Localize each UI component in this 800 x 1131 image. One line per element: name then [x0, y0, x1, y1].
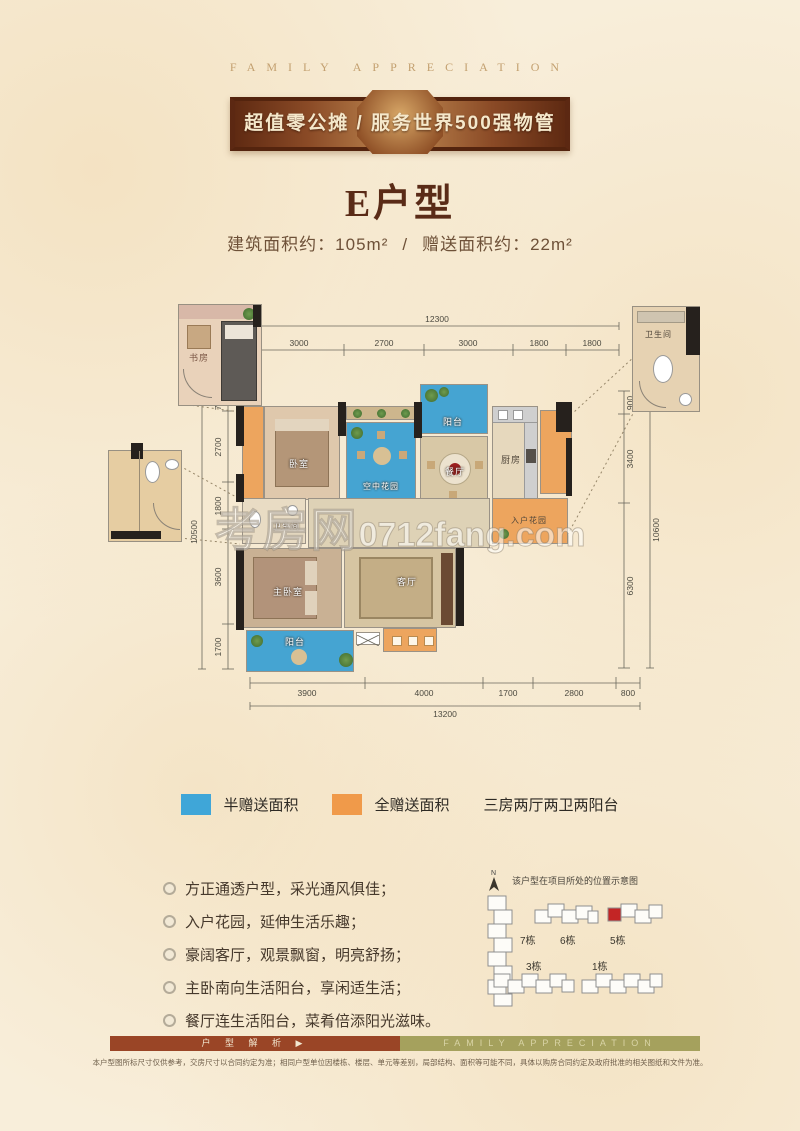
- room-label: 空中花园: [363, 481, 399, 492]
- dim-top-seg: 2700: [364, 338, 404, 348]
- dim-bottom-seg: 4000: [404, 688, 444, 698]
- dim-right-seg: 3400: [625, 441, 635, 477]
- wall: [236, 402, 244, 446]
- dim-left-seg: 1700: [213, 629, 223, 665]
- legend-summary: 三房两厅两卫两阳台: [484, 794, 619, 815]
- site-plan: 该户型在项目所处的位置示意图 N 7栋 6栋 5栋 3栋 1栋: [480, 866, 670, 1016]
- feature-item: 豪阔客厅，观景飘窗，明亮舒扬；: [163, 944, 440, 965]
- room-label: 厨房: [501, 453, 521, 466]
- area-built: 建筑面积约：105m²: [227, 235, 388, 254]
- wall: [566, 438, 572, 496]
- north-arrow-icon: [489, 877, 499, 891]
- dim-left-seg: 3600: [213, 559, 223, 595]
- room-label: 主卧室: [273, 585, 303, 598]
- watermark: 考房网0712fang.com: [90, 494, 710, 560]
- wall: [338, 402, 346, 436]
- bullet-icon: [163, 882, 176, 895]
- building-label-3: 3栋: [526, 960, 542, 973]
- room-sky-garden: 空中花园: [346, 422, 416, 502]
- dim-right-seg: 6300: [625, 568, 635, 604]
- gift-strip-left: [242, 406, 264, 502]
- room-kitchen: 厨房: [492, 406, 538, 506]
- bullet-icon: [163, 948, 176, 961]
- page-title: E户型: [0, 172, 800, 227]
- legend: 半赠送面积 全赠送面积 三房两厅两卫两阳台: [0, 794, 800, 815]
- feature-item: 主卧南向生活阳台，享闲适生活；: [163, 977, 440, 998]
- room-label: 卫生间: [645, 329, 672, 340]
- building-label-1: 1栋: [592, 960, 608, 973]
- dim-top-total: 12300: [417, 314, 457, 324]
- dim-top-seg: 1800: [519, 338, 559, 348]
- wall: [236, 548, 244, 630]
- room-label: 餐厅: [445, 465, 465, 478]
- room-living: 客厅: [344, 548, 456, 628]
- planter-strip: [346, 406, 416, 420]
- feature-item: 方正通透户型，采光通风俱佳；: [163, 878, 440, 899]
- dim-bottom-seg: 2800: [554, 688, 594, 698]
- flyer-page: FAMILY APPRECIATION 超值零公摊 / 服务世界500强物管 E…: [0, 0, 800, 1131]
- legend-label-full: 全赠送面积: [374, 794, 449, 815]
- bullet-icon: [163, 1014, 176, 1027]
- dim-bottom-seg: 3900: [287, 688, 327, 698]
- eyebrow-text: FAMILY APPRECIATION: [0, 60, 800, 75]
- floor-plan: 12300 3000 2700 3000 1800 1800 10500 700…: [90, 298, 710, 740]
- watermark-en: 0712fang.com: [359, 516, 586, 554]
- building-label-6: 6栋: [560, 934, 576, 947]
- room-bedroom: 卧室: [264, 406, 340, 500]
- bullet-icon: [163, 981, 176, 994]
- room-label: 阳台: [285, 635, 305, 648]
- building-label-7: 7栋: [520, 934, 536, 947]
- wall: [556, 402, 572, 432]
- legend-swatch-half: [181, 794, 211, 815]
- room-balcony-top: 阳台: [420, 384, 488, 434]
- inset-bath-top: 卫生间: [632, 306, 700, 412]
- area-subtitle: 建筑面积约：105m²/赠送面积约：22m²: [0, 230, 800, 255]
- feature-item: 入户花园，延伸生活乐趣；: [163, 911, 440, 932]
- footer-bar-left: 户 型 解 析 ▶: [110, 1036, 400, 1051]
- site-plan-caption: 该户型在项目所处的位置示意图: [512, 874, 638, 887]
- room-label: 卧室: [289, 457, 309, 470]
- window-symbol: [356, 632, 380, 645]
- feature-item: 餐厅连生活阳台，菜肴倍添阳光滋味。: [163, 1010, 440, 1031]
- dim-bottom-seg: 800: [608, 688, 648, 698]
- room-label: 客厅: [397, 575, 417, 588]
- area-gift: 赠送面积约：22m²: [422, 235, 573, 254]
- site-plan-map: N 7栋 6栋 5栋 3栋 1栋: [480, 866, 670, 1016]
- watermark-cn: 考房网: [215, 504, 359, 556]
- feature-list: 方正通透户型，采光通风俱佳； 入户花园，延伸生活乐趣； 豪阔客厅，观景飘窗，明亮…: [163, 878, 440, 1043]
- dim-left-seg: 2700: [213, 429, 223, 465]
- room-master-bedroom: 主卧室: [242, 548, 342, 628]
- north-label: N: [491, 870, 496, 877]
- dim-bottom-total: 13200: [425, 709, 465, 719]
- room-label: 阳台: [443, 415, 463, 428]
- wall: [414, 402, 422, 438]
- dim-top-seg: 3000: [279, 338, 319, 348]
- legend-swatch-full: [332, 794, 362, 815]
- dim-top-seg: 1800: [572, 338, 612, 348]
- dim-bottom-seg: 1700: [488, 688, 528, 698]
- room-balcony-bottom: 阳台: [246, 630, 354, 672]
- highlighted-unit: [608, 908, 621, 921]
- footer-bar-right: FAMILY APPRECIATION: [400, 1036, 700, 1051]
- room-label: 书房: [189, 351, 209, 364]
- building-label-5: 5栋: [610, 934, 626, 947]
- bullet-icon: [163, 915, 176, 928]
- ribbon-banner: 超值零公摊 / 服务世界500强物管: [230, 97, 570, 151]
- ribbon-text: 超值零公摊 / 服务世界500强物管: [235, 101, 565, 147]
- dim-top-seg: 3000: [448, 338, 488, 348]
- gift-box-bottom: [383, 628, 437, 652]
- area-separator: /: [402, 235, 408, 254]
- legend-label-half: 半赠送面积: [223, 794, 298, 815]
- inset-study: 书房: [178, 304, 262, 406]
- disclaimer-text: 本户型图所标尺寸仅供参考，交房尺寸以合同约定为准；相同户型单位因楼栋、楼层、单元…: [0, 1057, 800, 1068]
